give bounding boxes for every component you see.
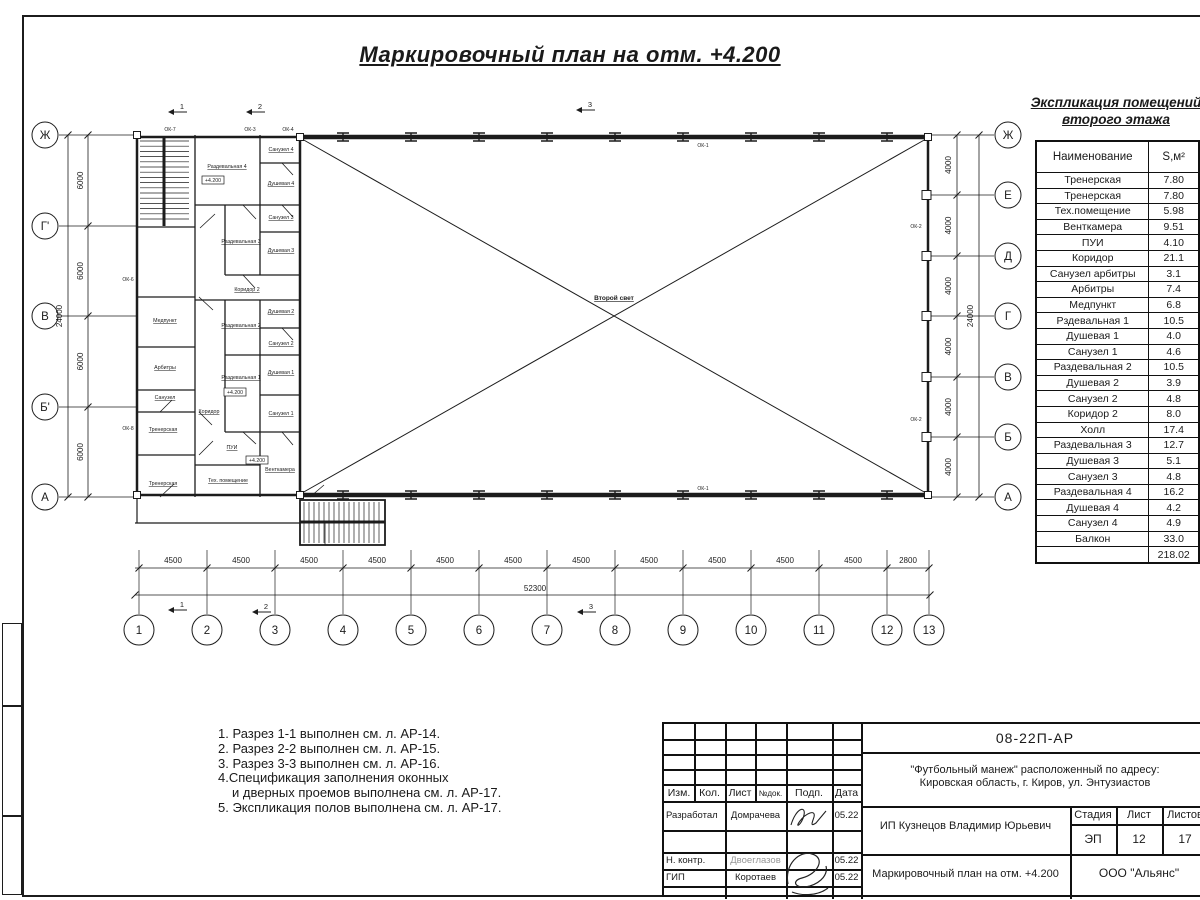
- room-name-cell: Венткамера: [1036, 219, 1149, 235]
- axis-label-bottom: 12: [881, 625, 894, 637]
- dim-value: 4500: [232, 556, 250, 565]
- room-name-cell: Балкон: [1036, 531, 1149, 547]
- corner-plate: [925, 492, 932, 499]
- room-label: Санузел 4: [268, 147, 293, 153]
- room-name-cell: Санузел 3: [1036, 469, 1149, 485]
- column-square: [922, 252, 931, 261]
- room-name-cell: Тренерская: [1036, 173, 1149, 189]
- dim-total: 52300: [524, 584, 547, 593]
- dim-value: 6000: [76, 171, 85, 189]
- dim-value: 4500: [504, 556, 522, 565]
- room-area-cell: 6.8: [1149, 297, 1199, 313]
- room-name-cell: Раздевальная 3: [1036, 438, 1149, 454]
- tb-line: [861, 806, 1200, 808]
- dim-value: 4000: [944, 216, 953, 234]
- axis-label-right: А: [1004, 492, 1012, 504]
- axis-label-bottom: 13: [923, 625, 936, 637]
- room-label: Тех. помещение: [208, 478, 248, 484]
- dim-value: 4500: [436, 556, 454, 565]
- axis-label-bottom: 5: [408, 625, 414, 637]
- axis-label-bottom: 4: [340, 625, 347, 637]
- elevation-mark: +4.200: [205, 178, 221, 184]
- room-area-cell: 4.8: [1149, 469, 1199, 485]
- room-label: Венткамера: [265, 467, 295, 473]
- axis-label-bottom: 2: [204, 625, 210, 637]
- room-name-cell: Раздевальная 4: [1036, 484, 1149, 500]
- hall-cross: [302, 139, 926, 493]
- dim-value: 4500: [640, 556, 658, 565]
- table-row: Коридор21.1: [1036, 250, 1199, 266]
- axis-label-left: Г': [41, 221, 49, 233]
- room-area-cell: 10.5: [1149, 360, 1199, 376]
- dim-value: 4500: [368, 556, 386, 565]
- axis-label-bottom: 1: [136, 625, 142, 637]
- table-row: 218.02: [1036, 547, 1199, 563]
- dim-value: 4000: [944, 156, 953, 174]
- sheet-label: Лист: [1116, 809, 1162, 821]
- plan-generated-layer: ЖГ'ВБ'А600060006000600024000ЖЕДГВБА40004…: [32, 100, 1021, 645]
- window-mark: ОК-4: [282, 127, 293, 133]
- axis-label-right: Б: [1004, 432, 1012, 444]
- sheet-name: Маркировочный план на отм. +4.200: [864, 868, 1067, 880]
- dim-total: 24000: [55, 304, 64, 327]
- window-mark: ОК-1: [697, 486, 708, 492]
- axis-label-left: Ж: [40, 130, 51, 142]
- column-square: [922, 373, 931, 382]
- column-square: [922, 433, 931, 442]
- tb-col-kol: Кол.: [694, 787, 725, 799]
- room-table-body: Тренерская7.80Тренерская7.80Тех.помещени…: [1036, 173, 1199, 563]
- room-label: ПУИ: [227, 445, 238, 451]
- note-line: 3. Разрез 3-3 выполнен см. л. АР-16.: [218, 757, 502, 772]
- room-label: Арбитры: [154, 365, 176, 371]
- title-block: 08-22П-АР "Футбольный манеж" расположенн…: [662, 722, 1200, 897]
- tb-col-data: Дата: [832, 787, 861, 799]
- room-area-cell: 33.0: [1149, 531, 1199, 547]
- dim-value: 4000: [944, 277, 953, 295]
- tb-line: [1070, 824, 1200, 826]
- room-name-cell: Санузел 2: [1036, 391, 1149, 407]
- room-name-cell: Санузел 4: [1036, 516, 1149, 532]
- room-name-cell: Тренерская: [1036, 188, 1149, 204]
- project-line2: Кировская область, г. Киров, ул. Энтузиа…: [861, 777, 1200, 789]
- column-square: [922, 312, 931, 321]
- room-area-cell: 7.80: [1149, 188, 1199, 204]
- room-area-cell: 7.80: [1149, 173, 1199, 189]
- room-area-cell: 4.10: [1149, 235, 1199, 251]
- table-row: Тех.помещение5.98: [1036, 204, 1199, 220]
- table-row: Венткамера9.51: [1036, 219, 1199, 235]
- table-row: Душевая 44.2: [1036, 500, 1199, 516]
- axis-label-right: Ж: [1003, 130, 1014, 142]
- table-row: Медпункт6.8: [1036, 297, 1199, 313]
- room-label: Душевая 1: [268, 370, 295, 376]
- room-area-cell: 9.51: [1149, 219, 1199, 235]
- axis-label-bottom: 11: [813, 625, 825, 637]
- tb-line: [664, 801, 861, 803]
- hall-label: Второй свет: [594, 294, 634, 302]
- corner-plate: [134, 132, 141, 139]
- axis-label-left: А: [41, 492, 49, 504]
- room-schedule-header-row: Наименование S,м²: [1036, 141, 1199, 173]
- table-row: Санузел арбитры3.1: [1036, 266, 1199, 282]
- tb-col-list: Лист: [725, 787, 755, 799]
- role-ncontrol: Н. контр.: [666, 855, 724, 866]
- room-schedule-table: Наименование S,м² Тренерская7.80Тренерск…: [1035, 140, 1200, 564]
- room-name-cell: Душевая 3: [1036, 453, 1149, 469]
- dim-value: 4000: [944, 398, 953, 416]
- corner-plate: [134, 492, 141, 499]
- section-marker-arrow: [576, 107, 582, 113]
- date-developer: 05.22: [832, 810, 861, 821]
- room-name-cell: Душевая 1: [1036, 328, 1149, 344]
- table-row: Санузел 14.6: [1036, 344, 1199, 360]
- role-gip: ГИП: [666, 872, 724, 883]
- client-name: ИП Кузнецов Владимир Юрьевич: [864, 820, 1067, 832]
- room-area-cell: 8.0: [1149, 406, 1199, 422]
- section-marker-label: 3: [588, 100, 592, 109]
- elevation-mark: +4.200: [227, 390, 243, 396]
- room-name-cell: Тех.помещение: [1036, 204, 1149, 220]
- table-row: Санузел 34.8: [1036, 469, 1199, 485]
- room-area-cell: 4.0: [1149, 328, 1199, 344]
- table-row: Арбитры7.4: [1036, 282, 1199, 298]
- dim-value: 4500: [164, 556, 182, 565]
- room-name-cell: Медпункт: [1036, 297, 1149, 313]
- table-row: Раздевальная 210.5: [1036, 360, 1199, 376]
- dim-value: 4500: [708, 556, 726, 565]
- section-marker-label: 3: [589, 602, 593, 611]
- project-line1: "Футбольный манеж" расположенный по адре…: [861, 764, 1200, 776]
- table-row: Балкон33.0: [1036, 531, 1199, 547]
- tb-col-izm: Изм.: [664, 787, 694, 799]
- table-row: Душевая 35.1: [1036, 453, 1199, 469]
- room-label: Душевая 4: [268, 181, 295, 187]
- corner-plate: [925, 134, 932, 141]
- section-marker-label: 2: [258, 102, 262, 111]
- axis-label-right: Г: [1005, 311, 1012, 323]
- room-label: Санузел 1: [268, 411, 293, 417]
- room-label: Раздевальная 1: [221, 375, 260, 381]
- axis-label-right: Д: [1004, 251, 1012, 263]
- note-line: 4.Спецификация заполнения оконных: [218, 771, 502, 786]
- notes-list: 1. Разрез 1-1 выполнен см. л. АР-14.2. Р…: [218, 727, 502, 816]
- note-line: 1. Разрез 1-1 выполнен см. л. АР-14.: [218, 727, 502, 742]
- tb-line: [664, 754, 861, 756]
- column-header-name: Наименование: [1036, 141, 1149, 173]
- section-marker-arrow: [252, 609, 258, 615]
- table-row: Холл17.4: [1036, 422, 1199, 438]
- room-label: Раздевальная 3: [221, 239, 260, 245]
- room-area-cell: 3.1: [1149, 266, 1199, 282]
- signature-developer: [786, 803, 830, 830]
- doc-code: 08-22П-АР: [861, 730, 1200, 746]
- room-area-cell: 4.8: [1149, 391, 1199, 407]
- axis-label-bottom: 7: [544, 625, 550, 637]
- room-area-cell: 4.2: [1149, 500, 1199, 516]
- room-area-cell: 12.7: [1149, 438, 1199, 454]
- table-row: Тренерская7.80: [1036, 173, 1199, 189]
- axis-label-right: В: [1004, 372, 1012, 384]
- room-area-cell: 4.6: [1149, 344, 1199, 360]
- room-label: Санузел: [155, 395, 176, 401]
- window-mark: ОК-2: [910, 224, 921, 230]
- tb-line: [664, 769, 861, 771]
- section-marker-arrow: [168, 607, 174, 613]
- room-area-cell: 21.1: [1149, 250, 1199, 266]
- tb-line: [664, 784, 861, 786]
- room-area-cell: 7.4: [1149, 282, 1199, 298]
- dim-value: 4500: [572, 556, 590, 565]
- table-row: Санузел 24.8: [1036, 391, 1199, 407]
- room-area-cell: 218.02: [1149, 547, 1199, 563]
- stage-label: Стадия: [1070, 809, 1116, 821]
- sheets-label: Листов: [1162, 809, 1200, 821]
- room-name-cell: Душевая 4: [1036, 500, 1149, 516]
- axis-label-left: Б': [40, 402, 50, 414]
- sheets-total: 17: [1162, 832, 1200, 846]
- balcony: [135, 497, 300, 523]
- axis-label-bottom: 9: [680, 625, 686, 637]
- sheet-number: 12: [1116, 832, 1162, 846]
- axis-label-right: Е: [1004, 190, 1012, 202]
- dim-total: 24000: [966, 304, 975, 327]
- dim-value: 4500: [300, 556, 318, 565]
- section-marker-label: 2: [264, 602, 268, 611]
- role-developer: Разработал: [666, 810, 724, 821]
- window-mark: ОК-1: [697, 143, 708, 149]
- tb-line: [861, 752, 1200, 754]
- room-label: Раздевальная 4: [207, 164, 246, 170]
- table-row: Раздевальная 312.7: [1036, 438, 1199, 454]
- axis-label-bottom: 10: [745, 625, 758, 637]
- stage-value: ЭП: [1070, 832, 1116, 846]
- room-schedule-title-line1: Экспликация помещений: [1028, 94, 1200, 111]
- section-marker-arrow: [246, 109, 252, 115]
- room-name-cell: [1036, 547, 1149, 563]
- room-label: Санузел 3: [268, 215, 293, 221]
- walls-left-block: [135, 135, 300, 497]
- room-area-cell: 3.9: [1149, 375, 1199, 391]
- room-name-cell: ПУИ: [1036, 235, 1149, 251]
- axis-label-left: В: [41, 311, 49, 323]
- table-row: Душевая 23.9: [1036, 375, 1199, 391]
- corner-plate: [297, 134, 304, 141]
- section-marker-arrow: [168, 109, 174, 115]
- room-schedule-title: Экспликация помещений второго этажа: [1028, 94, 1200, 128]
- section-marker-arrow: [577, 609, 583, 615]
- date-ncontrol: 05.22: [832, 855, 861, 866]
- room-label: Коридор: [199, 409, 220, 415]
- room-label: Душевая 2: [268, 309, 295, 315]
- name-developer: Домрачева: [726, 810, 785, 821]
- room-name-cell: Коридор: [1036, 250, 1149, 266]
- column-square: [922, 191, 931, 200]
- elevation-mark: +4.200: [249, 458, 265, 464]
- room-area-cell: 16.2: [1149, 484, 1199, 500]
- table-row: Коридор 28.0: [1036, 406, 1199, 422]
- room-label: Тренерская: [149, 481, 178, 487]
- window-mark: ОК-6: [122, 277, 133, 283]
- room-name-cell: Рздевальная 1: [1036, 313, 1149, 329]
- axis-label-bottom: 8: [612, 625, 618, 637]
- dim-value: 4500: [776, 556, 794, 565]
- partitions: [137, 135, 300, 497]
- table-row: Тренерская7.80: [1036, 188, 1199, 204]
- column-header-area: S,м²: [1149, 141, 1199, 173]
- date-gip: 05.22: [832, 872, 861, 883]
- dim-value: 6000: [76, 443, 85, 461]
- dim-value: 6000: [76, 352, 85, 370]
- table-row: ПУИ4.10: [1036, 235, 1199, 251]
- room-label: Душевая 3: [268, 248, 295, 254]
- tb-col-podp: Подп.: [786, 787, 832, 799]
- room-label: Коридор 2: [234, 287, 259, 293]
- room-name-cell: Санузел арбитры: [1036, 266, 1149, 282]
- note-line: 5. Экспликация полов выполнена см. л. АР…: [218, 801, 502, 816]
- tb-line: [861, 724, 863, 899]
- room-label: Санузел 2: [268, 341, 293, 347]
- window-mark: ОК-7: [164, 127, 175, 133]
- note-line: 2. Разрез 2-2 выполнен см. л. АР-15.: [218, 742, 502, 757]
- axis-label-bottom: 6: [476, 625, 482, 637]
- window-mark: ОК-3: [244, 127, 255, 133]
- table-row: Душевая 14.0: [1036, 328, 1199, 344]
- room-label: Тренерская: [149, 427, 178, 433]
- room-label: Медпункт: [153, 318, 177, 324]
- window-mark: ОК-8: [122, 426, 133, 432]
- signature-gip: [782, 846, 832, 896]
- window-mark: ОК-2: [910, 417, 921, 423]
- tb-col-ndok: №док.: [755, 789, 786, 798]
- room-name-cell: Душевая 2: [1036, 375, 1149, 391]
- table-row: Раздевальная 416.2: [1036, 484, 1199, 500]
- table-row: Санузел 44.9: [1036, 516, 1199, 532]
- tb-line: [664, 830, 861, 832]
- room-name-cell: Холл: [1036, 422, 1149, 438]
- axis-label-bottom: 3: [272, 625, 278, 637]
- room-name-cell: Раздевальная 2: [1036, 360, 1149, 376]
- room-schedule-title-line2: второго этажа: [1028, 111, 1200, 128]
- name-gip: Коротаев: [726, 872, 785, 883]
- section-marker-label: 1: [180, 102, 184, 111]
- company-name: ООО "Альянс": [1073, 866, 1200, 880]
- table-row: Рздевальная 110.5: [1036, 313, 1199, 329]
- room-name-cell: Санузел 1: [1036, 344, 1149, 360]
- tb-line: [664, 739, 861, 741]
- dim-value: 6000: [76, 262, 85, 280]
- room-area-cell: 5.98: [1149, 204, 1199, 220]
- room-area-cell: 10.5: [1149, 313, 1199, 329]
- section-marker-label: 1: [180, 600, 184, 609]
- dim-value: 4000: [944, 458, 953, 476]
- note-line: и дверных проемов выполнена см. л. АР-17…: [218, 786, 502, 801]
- dim-value: 4500: [844, 556, 862, 565]
- room-name-cell: Коридор 2: [1036, 406, 1149, 422]
- room-area-cell: 5.1: [1149, 453, 1199, 469]
- name-ncontrol: Двоеглазов: [726, 855, 785, 866]
- room-label: Раздевальная 2: [221, 323, 260, 329]
- drawing-sheet: { "sheet": { "title": "Маркировочный пла…: [0, 0, 1200, 900]
- dim-value: 4000: [944, 337, 953, 355]
- tb-line: [861, 854, 1200, 856]
- room-name-cell: Арбитры: [1036, 282, 1149, 298]
- corner-plate: [297, 492, 304, 499]
- room-area-cell: 17.4: [1149, 422, 1199, 438]
- room-area-cell: 4.9: [1149, 516, 1199, 532]
- dim-value: 2800: [899, 556, 917, 565]
